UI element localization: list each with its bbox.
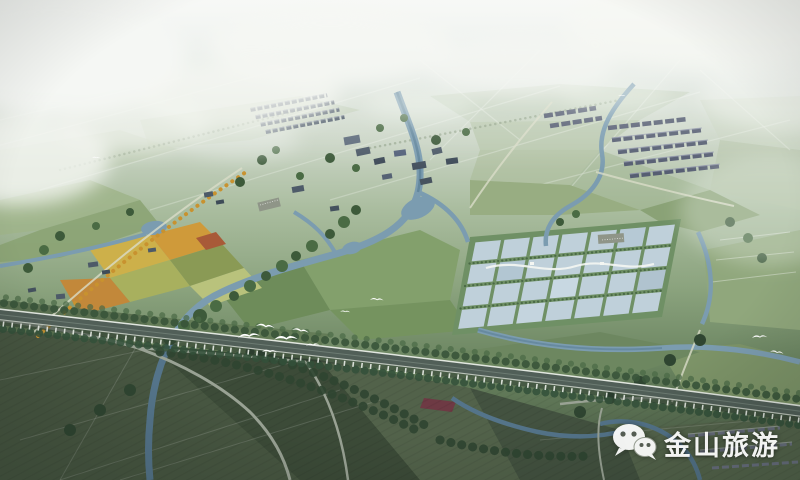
scene-canvas	[0, 0, 800, 480]
aerial-planning-render: 金山旅游	[0, 0, 800, 480]
vignette	[0, 0, 800, 480]
